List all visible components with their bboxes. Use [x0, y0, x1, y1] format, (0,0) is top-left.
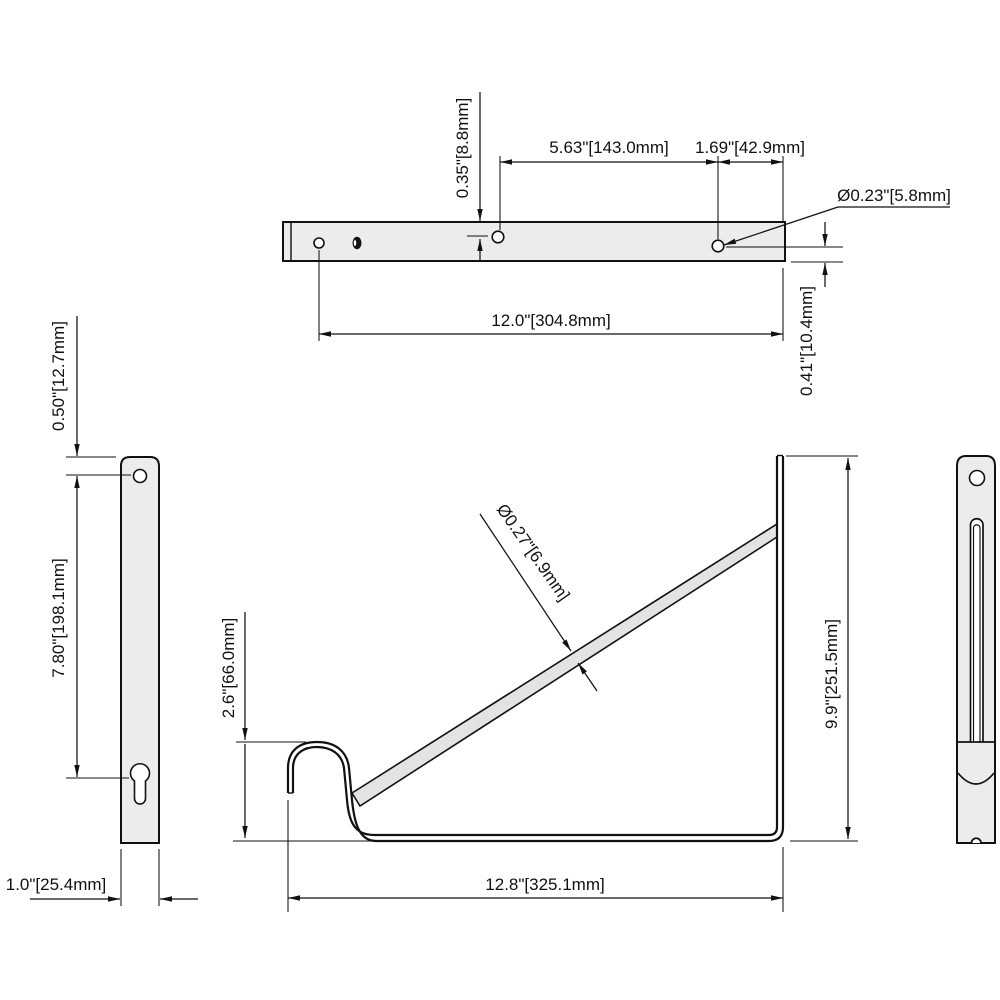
dim-label-hole-to-end: 1.69"[42.9mm]	[695, 138, 805, 157]
dim-label-bar-width: 1.0"[25.4mm]	[6, 875, 107, 894]
right-side-view	[957, 456, 995, 843]
left-side-view: 0.50"[12.7mm] 7.80"[198.1mm] 1.0"[25.4mm…	[6, 316, 198, 906]
dim-label-hole-to-keyhole: 7.80"[198.1mm]	[49, 558, 68, 677]
dim-label-overall-height: 9.9"[251.5mm]	[822, 619, 841, 729]
bottom-notch	[972, 838, 982, 843]
dim-label-overall-depth: 12.8"[325.1mm]	[485, 875, 604, 894]
dim-label-hook-height: 2.6"[66.0mm]	[219, 618, 238, 719]
bracket-outer-contour	[288, 456, 783, 841]
left-side-top-hole	[134, 470, 147, 483]
mounting-hole-4	[712, 240, 724, 252]
diagonal-strut	[352, 524, 777, 806]
dim-label-hole-offset-top: 0.35"[8.8mm]	[453, 98, 472, 199]
front-view: Ø0.27"[6.9mm] 2.6"[66.0mm] 12.8"[325.1mm…	[219, 456, 858, 913]
mounting-hole-1	[314, 238, 324, 248]
bracket-drawing: 0.35"[8.8mm] 5.63"[143.0mm] 1.69"[42.9mm…	[0, 0, 1000, 1000]
dim-hole-to-keyhole: 7.80"[198.1mm]	[49, 476, 129, 778]
adjustment-slot-outer	[971, 519, 984, 742]
dim-overall-depth: 12.8"[325.1mm]	[288, 800, 783, 912]
dim-label-hole-offset-bottom: 0.41"[10.4mm]	[797, 286, 816, 396]
dim-label-overall-length: 12.0"[304.8mm]	[491, 311, 610, 330]
top-view: 0.35"[8.8mm] 5.63"[143.0mm] 1.69"[42.9mm…	[283, 92, 951, 396]
dim-hook-height: 2.6"[66.0mm]	[219, 612, 372, 841]
right-side-top-hole	[970, 471, 985, 486]
dim-top-hole-offset: 0.50"[12.7mm]	[49, 316, 131, 475]
mounting-hole-2-highlight	[354, 240, 357, 246]
bracket-inner-contour	[293, 456, 777, 835]
dim-label-hole-diameter: Ø0.23"[5.8mm]	[837, 186, 951, 205]
dim-label-hole-spacing: 5.63"[143.0mm]	[549, 138, 668, 157]
technical-drawing-canvas: 0.35"[8.8mm] 5.63"[143.0mm] 1.69"[42.9mm…	[0, 0, 1000, 1000]
dim-bar-width: 1.0"[25.4mm]	[6, 849, 198, 906]
dim-overall-height: 9.9"[251.5mm]	[786, 456, 858, 841]
dim-label-top-hole-offset: 0.50"[12.7mm]	[49, 321, 68, 431]
dim-overall-length: 12.0"[304.8mm]	[319, 250, 783, 341]
mounting-hole-3	[492, 231, 504, 243]
